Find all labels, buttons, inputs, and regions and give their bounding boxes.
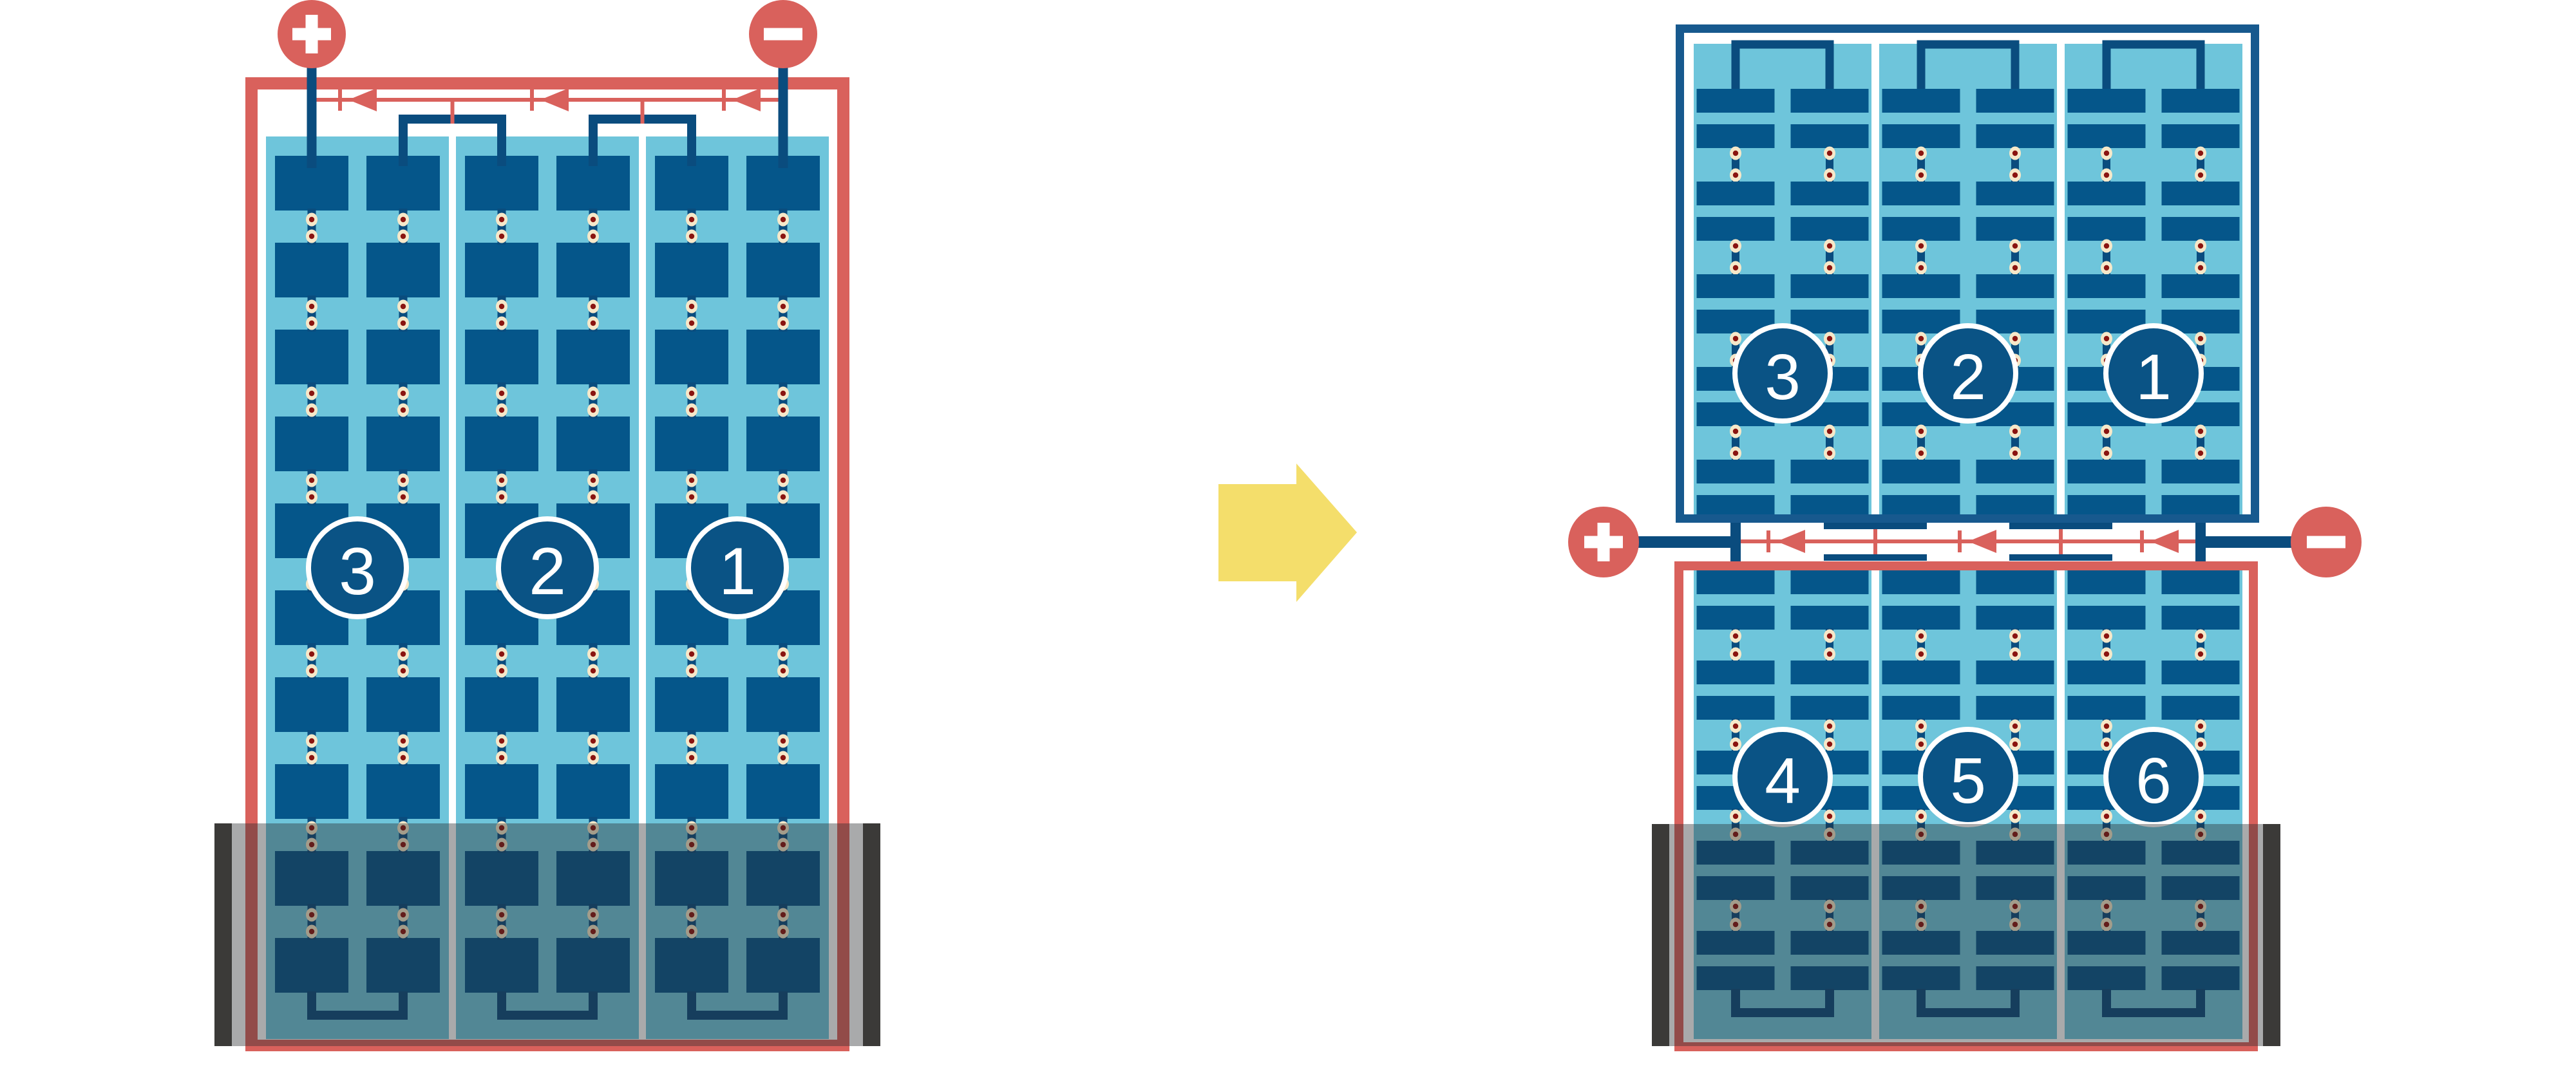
- solder-joint: [2009, 720, 2021, 733]
- solder-core: [781, 217, 786, 222]
- solar-cell: [275, 330, 348, 384]
- solder-core: [309, 668, 314, 673]
- solar-half-cell: [2068, 570, 2146, 594]
- solder-core: [309, 304, 314, 309]
- solder-core: [689, 755, 694, 760]
- string-number-label: 2: [1950, 341, 1986, 413]
- solder-core: [1827, 724, 1832, 729]
- solar-cell: [465, 417, 538, 471]
- solder-core: [2104, 151, 2109, 156]
- solar-half-cell: [1697, 274, 1775, 298]
- string-number-label: 2: [529, 534, 566, 609]
- solar-half-cell: [1697, 570, 1775, 594]
- solder-core: [689, 738, 694, 744]
- solder-joint: [1915, 425, 1927, 438]
- solar-half-cell: [1697, 89, 1775, 113]
- diode-triangle: [1777, 530, 1805, 553]
- solder-joint: [496, 213, 507, 227]
- solder-core: [309, 478, 314, 483]
- solder-core: [781, 668, 786, 673]
- solar-half-cell: [1976, 696, 2054, 720]
- end-connector-tab: [1730, 523, 1741, 562]
- solder-joint: [1915, 169, 1927, 182]
- solder-core: [1827, 151, 1832, 156]
- solar-half-cell: [1976, 274, 2054, 298]
- solar-half-cell: [2068, 696, 2146, 720]
- solar-half-cell: [1791, 660, 1869, 684]
- solder-core: [1827, 243, 1832, 248]
- solder-core: [1918, 265, 1924, 270]
- plus-icon: [1584, 536, 1623, 548]
- diode-cathode-bar: [1958, 530, 1962, 552]
- solder-joint: [2195, 239, 2206, 253]
- solder-joint: [397, 387, 409, 400]
- solar-cell: [366, 417, 440, 471]
- solar-module-wiring-diagram: 321321456: [0, 0, 2576, 1068]
- string-number-badge: 1: [2106, 326, 2201, 421]
- string-number-badge: 1: [688, 519, 786, 617]
- diagram-canvas: 321321456: [0, 0, 2576, 1068]
- solder-core: [689, 408, 694, 413]
- solder-core: [1733, 265, 1738, 270]
- solder-joint: [496, 648, 507, 661]
- solder-joint: [496, 474, 507, 487]
- solder-joint: [496, 404, 507, 417]
- solder-core: [309, 494, 314, 500]
- solder-joint: [2101, 630, 2112, 643]
- upper-node-bar: [2009, 523, 2112, 529]
- solar-half-cell: [1791, 124, 1869, 148]
- solder-core: [689, 478, 694, 483]
- solder-core: [2012, 429, 2018, 434]
- solder-joint: [2101, 810, 2112, 823]
- solder-core: [309, 234, 314, 239]
- solar-half-cell: [2162, 570, 2240, 594]
- solder-joint: [306, 317, 317, 330]
- solder-joint: [587, 735, 599, 748]
- solder-joint: [306, 751, 317, 765]
- solder-joint: [1824, 738, 1835, 751]
- solder-core: [2012, 265, 2018, 270]
- solder-joint: [1915, 810, 1927, 823]
- solder-joint: [306, 664, 317, 678]
- solar-half-cell: [1882, 89, 1960, 113]
- solder-joint: [686, 213, 697, 227]
- solar-half-cell: [2068, 124, 2146, 148]
- minus-icon: [764, 28, 802, 41]
- solar-half-cell: [1976, 570, 2054, 594]
- solder-joint: [686, 300, 697, 314]
- solder-joint: [777, 751, 789, 765]
- solder-joint: [587, 213, 599, 227]
- solder-joint: [1730, 332, 1741, 346]
- solder-core: [2012, 651, 2018, 657]
- solder-core: [499, 304, 504, 309]
- solar-cell: [746, 764, 820, 819]
- solder-core: [1733, 451, 1738, 456]
- lower-node-bar: [1824, 554, 1927, 561]
- solar-cell: [366, 243, 440, 297]
- solar-half-cell: [1882, 274, 1960, 298]
- solder-core: [309, 217, 314, 222]
- solder-joint: [496, 664, 507, 678]
- solder-joint: [496, 735, 507, 748]
- solder-joint: [397, 230, 409, 243]
- solder-core: [499, 668, 504, 673]
- shading-overlay: [1652, 824, 2280, 1046]
- solder-core: [2198, 336, 2203, 341]
- solar-half-cell: [2162, 495, 2240, 514]
- solder-core: [309, 391, 314, 396]
- solder-core: [591, 668, 596, 673]
- solder-joint: [2009, 332, 2021, 346]
- solder-core: [401, 217, 406, 222]
- solder-core: [401, 304, 406, 309]
- string-number-badge: 6: [2106, 729, 2201, 825]
- solder-core: [689, 668, 694, 673]
- solder-joint: [1915, 630, 1927, 643]
- solder-joint: [777, 387, 789, 400]
- solder-core: [1733, 243, 1738, 248]
- solder-joint: [1824, 169, 1835, 182]
- solder-joint: [397, 735, 409, 748]
- string-number-label: 1: [2136, 341, 2172, 413]
- solder-joint: [686, 230, 697, 243]
- solder-core: [591, 494, 596, 500]
- solder-joint: [2101, 169, 2112, 182]
- solder-joint: [777, 664, 789, 678]
- solder-core: [1918, 173, 1924, 178]
- solder-core: [1733, 814, 1738, 819]
- solder-joint: [1824, 147, 1835, 160]
- solar-cell: [465, 243, 538, 297]
- solder-joint: [2101, 425, 2112, 438]
- solder-joint: [1915, 648, 1927, 661]
- minus-icon: [2307, 536, 2345, 548]
- solder-core: [2104, 814, 2109, 819]
- solder-core: [499, 321, 504, 326]
- solder-core: [499, 234, 504, 239]
- solder-joint: [496, 751, 507, 765]
- solar-half-cell: [1882, 124, 1960, 148]
- solar-half-cell: [2068, 182, 2146, 205]
- solder-core: [591, 234, 596, 239]
- solder-joint: [1824, 810, 1835, 823]
- solder-core: [499, 494, 504, 500]
- solder-joint: [686, 404, 697, 417]
- positive-lead: [307, 64, 317, 168]
- solar-half-cell: [1697, 460, 1775, 483]
- solder-core: [309, 408, 314, 413]
- solder-joint: [1915, 147, 1927, 160]
- solder-core: [1733, 633, 1738, 639]
- string-number-label: 3: [1765, 341, 1801, 413]
- solar-half-cell: [2068, 460, 2146, 483]
- solder-joint: [2009, 169, 2021, 182]
- solder-joint: [1915, 239, 1927, 253]
- solder-joint: [306, 648, 317, 661]
- solder-core: [1918, 336, 1924, 341]
- solder-core: [1827, 742, 1832, 747]
- string-number-badge: 5: [1920, 729, 2016, 825]
- diode-triangle: [2150, 530, 2179, 553]
- solder-core: [401, 494, 406, 500]
- solar-half-cell: [1882, 570, 1960, 594]
- positive-terminal: [1568, 507, 1639, 577]
- solder-core: [1827, 451, 1832, 456]
- solder-joint: [2195, 738, 2206, 751]
- solar-cell: [556, 330, 630, 384]
- solder-core: [689, 217, 694, 222]
- solar-half-cell: [1976, 89, 2054, 113]
- solder-core: [401, 651, 406, 657]
- solder-core: [781, 755, 786, 760]
- solder-joint: [306, 387, 317, 400]
- solder-core: [689, 651, 694, 657]
- solar-half-cell: [1791, 274, 1869, 298]
- solder-joint: [686, 664, 697, 678]
- solder-joint: [1730, 239, 1741, 253]
- solar-half-cell: [1697, 182, 1775, 205]
- solder-joint: [686, 387, 697, 400]
- solder-core: [2012, 814, 2018, 819]
- solder-joint: [587, 751, 599, 765]
- solder-joint: [1730, 425, 1741, 438]
- solder-joint: [2195, 425, 2206, 438]
- solder-core: [1918, 151, 1924, 156]
- solar-half-cell: [1976, 495, 2054, 514]
- solder-core: [2104, 265, 2109, 270]
- node-tick: [641, 98, 645, 124]
- solder-joint: [397, 491, 409, 504]
- solar-half-cell: [2068, 274, 2146, 298]
- solar-half-cell: [1697, 606, 1775, 630]
- solder-core: [1733, 429, 1738, 434]
- solder-core: [591, 755, 596, 760]
- solder-joint: [2009, 810, 2021, 823]
- solder-core: [2198, 724, 2203, 729]
- solder-core: [781, 494, 786, 500]
- diode-triangle: [1968, 530, 1996, 553]
- solder-joint: [2195, 630, 2206, 643]
- solar-cell: [556, 677, 630, 732]
- solder-core: [591, 217, 596, 222]
- solar-half-cell: [2162, 89, 2240, 113]
- solder-joint: [587, 230, 599, 243]
- solder-joint: [1915, 720, 1927, 733]
- solar-cell: [465, 677, 538, 732]
- solder-joint: [306, 404, 317, 417]
- solar-half-cell: [1976, 124, 2054, 148]
- solder-joint: [397, 213, 409, 227]
- solder-core: [1827, 429, 1832, 434]
- transition-arrow-icon: [1218, 464, 1357, 602]
- solder-core: [401, 408, 406, 413]
- solder-core: [591, 738, 596, 744]
- solder-core: [2012, 742, 2018, 747]
- solar-half-cell: [1697, 124, 1775, 148]
- solder-joint: [496, 230, 507, 243]
- diode-cathode-bar: [338, 89, 342, 111]
- solder-core: [2198, 429, 2203, 434]
- solar-half-cell: [2162, 660, 2240, 684]
- solar-cell: [275, 243, 348, 297]
- solder-core: [2012, 243, 2018, 248]
- solder-core: [689, 304, 694, 309]
- solder-core: [1733, 336, 1738, 341]
- solder-core: [1733, 651, 1738, 657]
- solar-half-cell: [2162, 606, 2240, 630]
- solder-core: [689, 391, 694, 396]
- diode-cathode-bar: [2140, 530, 2144, 552]
- solder-core: [1918, 724, 1924, 729]
- solder-core: [309, 738, 314, 744]
- solar-cell: [366, 677, 440, 732]
- solder-joint: [2009, 648, 2021, 661]
- solder-joint: [2195, 720, 2206, 733]
- solar-half-cell: [1882, 495, 1960, 514]
- solar-half-cell: [1882, 217, 1960, 241]
- solar-half-cell: [1697, 696, 1775, 720]
- solar-cell: [746, 330, 820, 384]
- solder-core: [781, 651, 786, 657]
- solder-core: [781, 408, 786, 413]
- solder-core: [2198, 173, 2203, 178]
- solder-joint: [397, 300, 409, 314]
- solar-cell: [275, 764, 348, 819]
- solar-half-cell: [1697, 217, 1775, 241]
- solder-joint: [777, 230, 789, 243]
- solder-joint: [686, 474, 697, 487]
- solder-core: [309, 651, 314, 657]
- solar-cell: [275, 677, 348, 732]
- solar-cell: [746, 677, 820, 732]
- solder-core: [2012, 633, 2018, 639]
- shadow-edge-bar: [863, 823, 880, 1046]
- solar-half-cell: [1882, 182, 1960, 205]
- solder-joint: [2101, 147, 2112, 160]
- solder-core: [591, 651, 596, 657]
- solder-core: [1733, 173, 1738, 178]
- solder-core: [591, 478, 596, 483]
- negative-lead: [779, 64, 788, 168]
- solder-core: [689, 234, 694, 239]
- shadow-region: [1652, 824, 2280, 1046]
- solar-cell: [275, 417, 348, 471]
- solder-joint: [306, 735, 317, 748]
- lower-node-bar: [2009, 554, 2112, 561]
- solder-core: [1733, 724, 1738, 729]
- solder-core: [499, 217, 504, 222]
- solder-core: [1918, 243, 1924, 248]
- solder-joint: [777, 474, 789, 487]
- solder-core: [499, 755, 504, 760]
- solder-joint: [2009, 447, 2021, 460]
- solder-core: [499, 408, 504, 413]
- solder-core: [2012, 336, 2018, 341]
- solder-core: [1918, 633, 1924, 639]
- solar-cell: [556, 764, 630, 819]
- solar-cell: [746, 243, 820, 297]
- solar-cell: [655, 330, 728, 384]
- solder-joint: [777, 404, 789, 417]
- solder-core: [781, 234, 786, 239]
- solar-cell: [655, 417, 728, 471]
- solder-joint: [1824, 630, 1835, 643]
- solder-core: [2198, 451, 2203, 456]
- solder-joint: [1730, 447, 1741, 460]
- solar-half-cell: [1791, 460, 1869, 483]
- solar-cell: [465, 764, 538, 819]
- solar-half-cell: [1791, 89, 1869, 113]
- solar-half-cell: [2068, 606, 2146, 630]
- diode-cathode-bar: [1766, 530, 1770, 552]
- solder-core: [309, 321, 314, 326]
- solar-half-cell: [2162, 182, 2240, 205]
- solder-joint: [587, 317, 599, 330]
- solder-joint: [1730, 810, 1741, 823]
- solder-core: [2104, 451, 2109, 456]
- solder-core: [1827, 633, 1832, 639]
- solar-half-cell: [1882, 660, 1960, 684]
- solder-core: [2198, 633, 2203, 639]
- solder-core: [2104, 173, 2109, 178]
- solder-joint: [686, 648, 697, 661]
- solar-half-cell: [1976, 217, 2054, 241]
- solder-joint: [686, 735, 697, 748]
- solder-joint: [2101, 239, 2112, 253]
- solder-joint: [2195, 261, 2206, 275]
- solder-joint: [306, 491, 317, 504]
- solder-joint: [397, 648, 409, 661]
- solar-cell: [556, 417, 630, 471]
- solder-joint: [2101, 738, 2112, 751]
- solder-joint: [306, 474, 317, 487]
- solar-half-cell: [1791, 696, 1869, 720]
- solder-joint: [686, 491, 697, 504]
- solder-core: [1918, 451, 1924, 456]
- diode-cathode-bar: [530, 89, 534, 111]
- solder-joint: [2009, 147, 2021, 160]
- upper-node-bar: [1824, 523, 1927, 529]
- solder-joint: [1824, 720, 1835, 733]
- string-number-badge: 4: [1735, 729, 1830, 825]
- solar-half-cell: [2162, 274, 2240, 298]
- solar-half-cell: [1882, 460, 1960, 483]
- solder-core: [1827, 336, 1832, 341]
- string-number-label: 3: [339, 534, 376, 609]
- solder-joint: [587, 387, 599, 400]
- solder-joint: [587, 404, 599, 417]
- solder-joint: [496, 300, 507, 314]
- solder-joint: [777, 491, 789, 504]
- solder-joint: [1730, 630, 1741, 643]
- solar-half-cell: [1697, 660, 1775, 684]
- solder-joint: [2195, 169, 2206, 182]
- string-number-badge: 2: [1920, 326, 2016, 421]
- solder-joint: [1730, 720, 1741, 733]
- solder-core: [499, 651, 504, 657]
- half-cell-upper-module: 321: [1676, 24, 2259, 523]
- solder-core: [2198, 243, 2203, 248]
- solder-core: [2012, 451, 2018, 456]
- solar-half-cell: [1791, 217, 1869, 241]
- solder-joint: [496, 491, 507, 504]
- solder-joint: [2009, 630, 2021, 643]
- solder-core: [1827, 814, 1832, 819]
- solar-half-cell: [1976, 460, 2054, 483]
- solder-core: [2104, 742, 2109, 747]
